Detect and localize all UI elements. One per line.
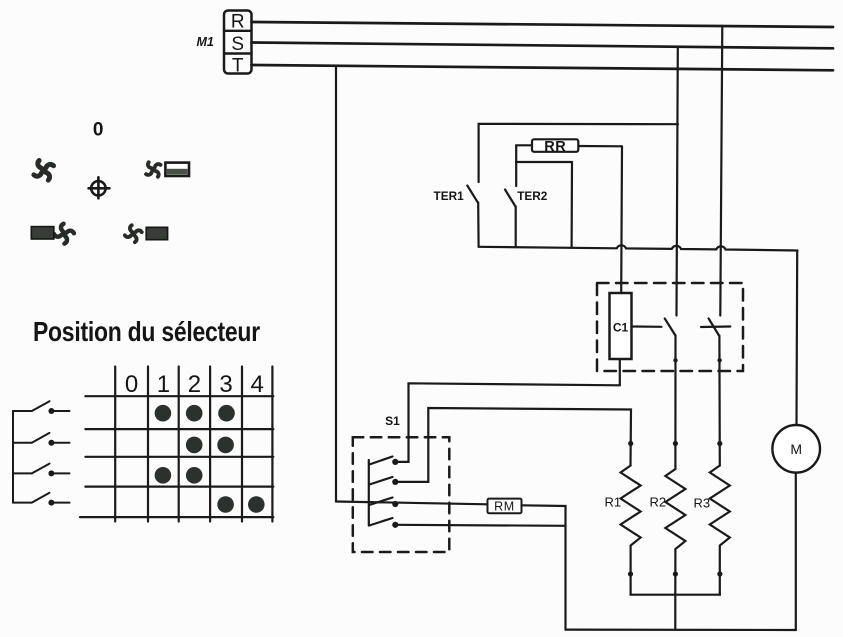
svg-text:T: T bbox=[232, 56, 244, 77]
svg-text:C1: C1 bbox=[613, 321, 629, 335]
svg-text:1: 1 bbox=[157, 371, 170, 398]
svg-text:R1: R1 bbox=[605, 495, 622, 510]
svg-text:RM: RM bbox=[494, 499, 515, 513]
svg-text:Position du sélecteur: Position du sélecteur bbox=[33, 317, 260, 347]
svg-text:0: 0 bbox=[93, 120, 104, 141]
svg-text:M: M bbox=[790, 441, 802, 457]
svg-text:M1: M1 bbox=[197, 35, 214, 49]
svg-text:RR: RR bbox=[544, 139, 566, 155]
svg-text:4: 4 bbox=[251, 371, 264, 398]
svg-text:S1: S1 bbox=[385, 414, 400, 428]
svg-text:R: R bbox=[231, 12, 245, 33]
svg-text:R2: R2 bbox=[650, 495, 667, 510]
svg-text:2: 2 bbox=[188, 371, 201, 398]
svg-text:3: 3 bbox=[219, 371, 232, 398]
svg-text:0: 0 bbox=[125, 371, 138, 398]
svg-text:S: S bbox=[231, 34, 244, 55]
svg-text:R3: R3 bbox=[694, 496, 711, 511]
svg-text:TER2: TER2 bbox=[517, 189, 548, 203]
svg-text:TER1: TER1 bbox=[434, 189, 465, 203]
